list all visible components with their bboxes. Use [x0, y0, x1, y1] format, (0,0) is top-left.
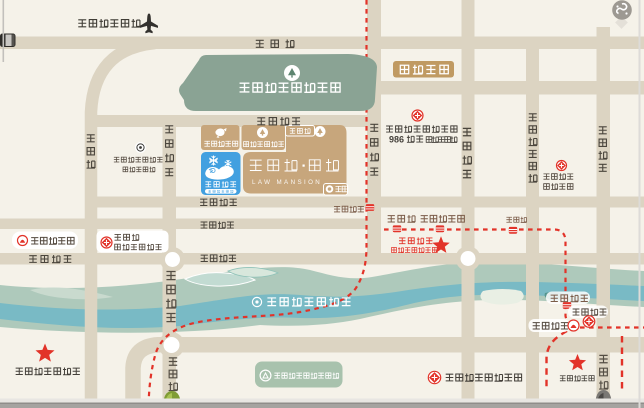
svg-text:LAW MANSION: LAW MANSION [252, 179, 322, 186]
svg-text:986: 986 [389, 135, 404, 145]
